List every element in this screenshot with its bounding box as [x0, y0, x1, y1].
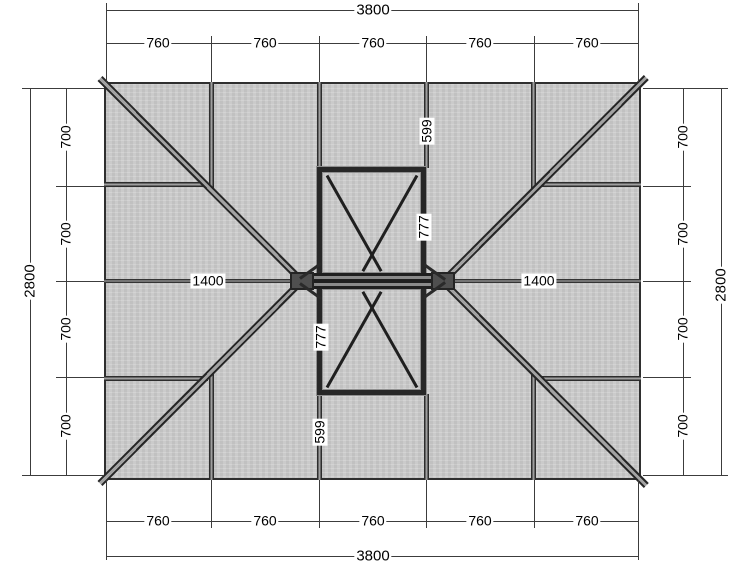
- batten-4-bottom: [531, 372, 536, 480]
- ext-line-left-grid-2: [56, 281, 104, 282]
- ext-line-left-bottom: [22, 475, 104, 476]
- dim-label-bottom-segment: 760: [573, 514, 600, 529]
- dim-label-bottom-segment: 760: [251, 514, 278, 529]
- dim-label-left-segment: 700: [59, 123, 74, 150]
- ext-line-bottom-left-corner: [106, 480, 107, 560]
- dim-label-left-segment: 700: [59, 412, 74, 439]
- dim-label-ridge-right: 1400: [521, 274, 556, 289]
- dim-label-left-total: 2800: [23, 262, 38, 299]
- ext-line-right-bottom: [643, 475, 728, 476]
- ext-line-right-top: [643, 88, 728, 89]
- purlin-left-upper: [104, 182, 208, 187]
- purlin-right-lower: [537, 376, 641, 381]
- dim-label-upper-opening-offset: 599: [420, 117, 435, 144]
- dim-label-right-segment: 700: [676, 123, 691, 150]
- batten-1-top: [209, 82, 214, 190]
- dim-label-right-segment: 700: [676, 220, 691, 247]
- batten-3-bottom: [424, 394, 429, 480]
- dim-label-bottom-segment: 760: [359, 514, 386, 529]
- dim-label-top-segment: 760: [466, 36, 493, 51]
- dim-label-top-segment: 760: [144, 36, 171, 51]
- ridge-beam: [302, 273, 443, 289]
- dim-label-left-segment: 700: [59, 220, 74, 247]
- dim-label-right-segment: 700: [676, 412, 691, 439]
- dim-label-ridge-left: 1400: [190, 274, 225, 289]
- dim-label-right-total: 2800: [714, 266, 729, 303]
- dim-label-left-segment: 700: [59, 315, 74, 342]
- batten-4-top: [531, 82, 536, 190]
- dim-label-bottom-segment: 760: [466, 514, 493, 529]
- dim-label-top-segment: 760: [359, 36, 386, 51]
- batten-1-bottom: [209, 372, 214, 480]
- dim-label-right-segment: 700: [676, 315, 691, 342]
- dim-label-upper-opening-height: 777: [417, 213, 432, 240]
- purlin-right-upper: [537, 182, 641, 187]
- ext-line-bottom-right-corner: [638, 480, 639, 560]
- dim-label-lower-opening-height: 777: [314, 323, 329, 350]
- dim-label-bottom-segment: 760: [144, 514, 171, 529]
- ext-line-left-grid-1: [56, 186, 104, 187]
- dim-label-lower-opening-offset: 599: [313, 418, 328, 445]
- purlin-left-lower: [104, 376, 208, 381]
- dim-label-top-segment: 760: [251, 36, 278, 51]
- batten-2-top: [317, 82, 322, 168]
- dim-label-bottom-total: 3800: [354, 549, 391, 564]
- ext-line-left-top: [22, 88, 104, 89]
- ext-line-left-grid-3: [56, 377, 104, 378]
- roof-plan-canvas: 3800 760 760 760 760 760 760 760 760 760…: [0, 0, 748, 571]
- dim-label-top-total: 3800: [354, 3, 391, 18]
- dim-label-top-segment: 760: [573, 36, 600, 51]
